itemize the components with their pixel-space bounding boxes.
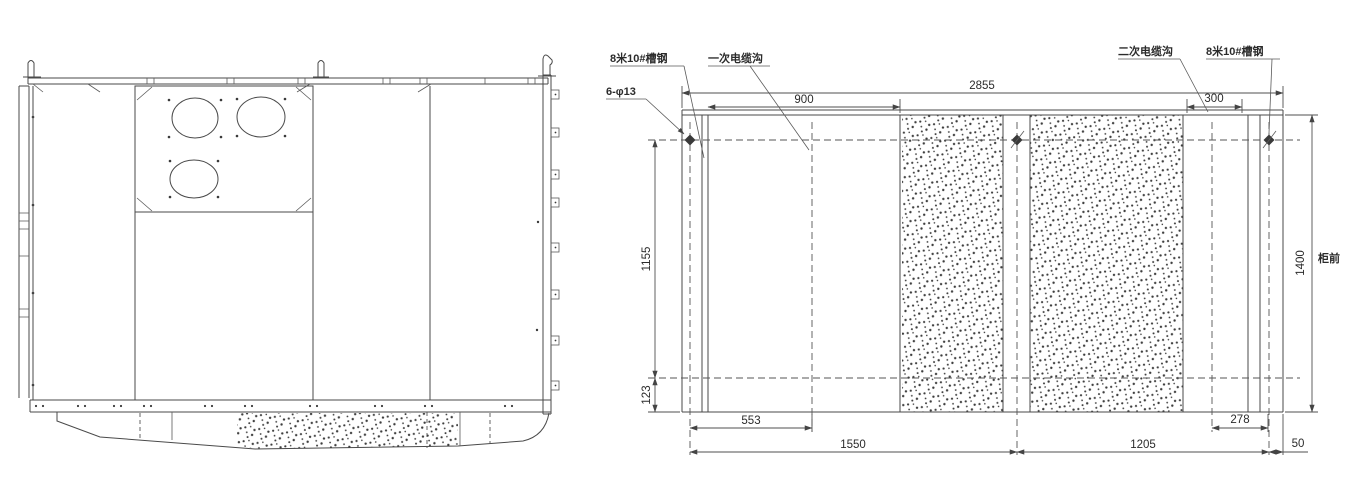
- hole-diamond-icon: [685, 135, 696, 146]
- dim-span-right: 1205: [1017, 439, 1269, 452]
- secondary-trench-label: 二次电缆沟: [1118, 44, 1173, 58]
- foundation-plan-drawing: 2855 900 300 1155 123 1400 柜前: [600, 0, 1368, 501]
- bushing-plate: [135, 86, 313, 212]
- holes-label: 6-φ13: [606, 86, 636, 98]
- trench-hatch: [237, 413, 458, 449]
- bushing-hole-icon: [172, 98, 218, 138]
- dim-trench-offset-value: 553: [741, 415, 760, 427]
- dim-offset-right-value: 278: [1230, 414, 1249, 426]
- dim-total-width: 2855: [682, 80, 1283, 108]
- cabinet-front-label: 柜前: [1317, 251, 1340, 265]
- dim-depth-value: 1400: [1295, 250, 1307, 276]
- trench-hatch-left: [902, 115, 1003, 412]
- callout-holes: 6-φ13: [606, 86, 684, 134]
- lifting-lug-icon: [23, 61, 41, 79]
- bushing-hole-icon: [237, 97, 285, 137]
- dim-total-width-value: 2855: [969, 80, 995, 92]
- dim-depth: 1400 柜前: [1285, 115, 1340, 412]
- dim-height-upper: 1155: [641, 140, 655, 378]
- dim-span-left: 1550: [690, 439, 1017, 452]
- channel-left-label: 8米10#槽钢: [610, 51, 667, 65]
- dim-height-lower-value: 123: [641, 385, 653, 404]
- dim-bay-left-value: 900: [794, 94, 813, 106]
- primary-trench-label: 一次电缆沟: [708, 51, 763, 65]
- callout-channel-right: 8米10#槽钢: [1206, 44, 1280, 133]
- dim-bay-right-value: 300: [1204, 93, 1223, 105]
- cabinet-panels: [33, 75, 551, 414]
- dim-height-upper-value: 1155: [641, 247, 653, 272]
- lifting-lugs: [23, 55, 556, 78]
- channel-right-label: 8米10#槽钢: [1206, 44, 1263, 58]
- top-rail: [28, 78, 548, 84]
- dim-offset-right: 278: [1212, 414, 1268, 432]
- left-channel-strip: [19, 86, 34, 398]
- dim-trench-offset: 553: [690, 414, 812, 432]
- dim-height-lower: 123: [641, 378, 680, 412]
- rail-ticks: [147, 78, 535, 84]
- callout-secondary-trench: 二次电缆沟: [1118, 44, 1208, 112]
- lifting-lug-icon: [313, 61, 329, 79]
- dim-span-left-value: 1550: [840, 439, 866, 451]
- drawing-canvas: 2855 900 300 1155 123 1400 柜前: [0, 0, 1368, 501]
- lifting-lug-icon: [538, 55, 556, 76]
- trench-hatch-right: [1030, 115, 1183, 412]
- right-rail-clips: [536, 90, 559, 390]
- dim-span-right-value: 1205: [1130, 439, 1156, 451]
- foundation-skirt: [57, 412, 549, 449]
- base-bolt-dots: [35, 405, 513, 407]
- bushing-holes: [168, 97, 287, 198]
- cabinet-elevation-drawing: [0, 0, 600, 501]
- corner-braces: [33, 84, 431, 92]
- dim-edge-margin: 50: [1269, 414, 1308, 455]
- bushing-bolt-dots: [168, 98, 287, 199]
- stipple-regions: [902, 115, 1183, 412]
- bushing-hole-icon: [170, 160, 218, 198]
- base-rail: [30, 400, 551, 412]
- dim-edge-margin-value: 50: [1292, 438, 1305, 450]
